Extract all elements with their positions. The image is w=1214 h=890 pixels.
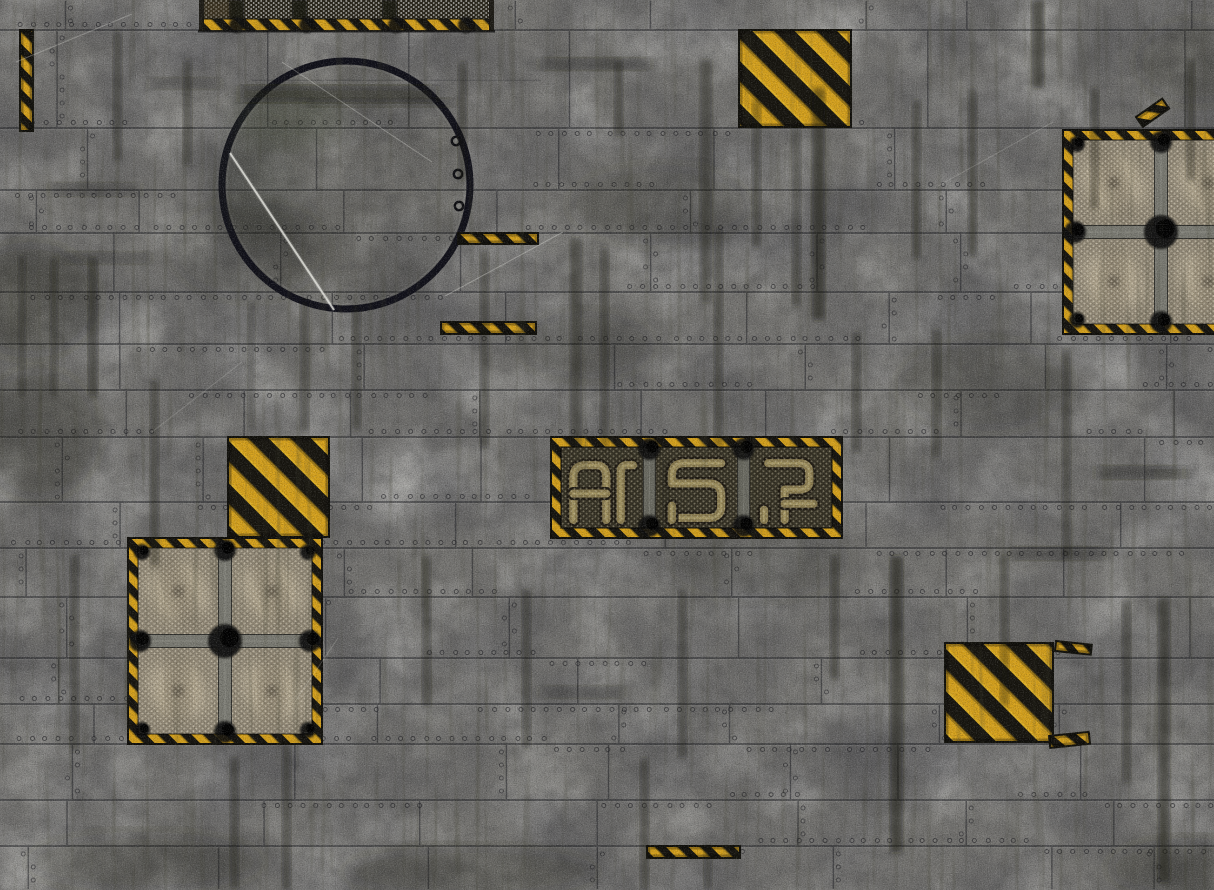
mat-texture-svg xyxy=(0,0,1214,890)
battle-mat xyxy=(0,0,1214,890)
